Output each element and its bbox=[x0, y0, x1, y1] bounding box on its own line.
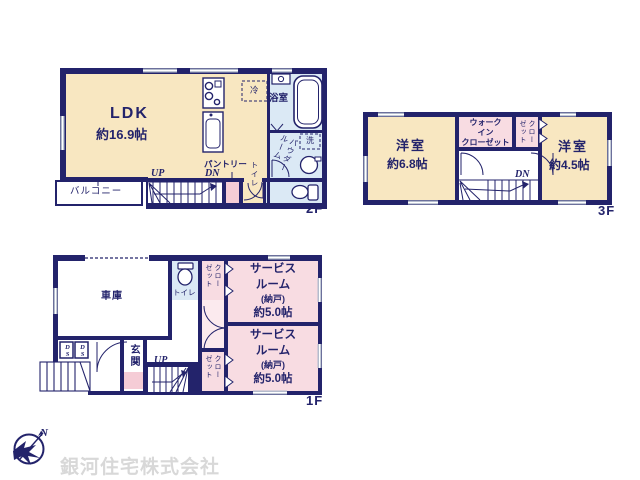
2f-toilet-label: トイレ bbox=[250, 161, 259, 191]
3f-room-right-name: 洋室 bbox=[558, 140, 588, 153]
1f-closet-top-label: クローゼット bbox=[204, 264, 222, 290]
3f-floor-label: 3F bbox=[598, 204, 615, 217]
1f-service-room-2-label: サービス ルーム (納戸) 約5.0帖 bbox=[228, 330, 318, 386]
3f-wic-line2: イン bbox=[478, 129, 494, 137]
1f-ds-label-2: DS bbox=[78, 344, 86, 358]
1f-toilet-label: トイレ bbox=[173, 289, 196, 297]
2f-bath-label: 浴室 bbox=[269, 94, 288, 104]
sr1-line1: サービス bbox=[250, 264, 296, 276]
2f-washer-label: 洗 bbox=[306, 137, 314, 145]
compass-north-label: N bbox=[40, 428, 48, 439]
3f-wic-line3: クローゼット bbox=[462, 139, 510, 147]
sr2-line3: (納戸) bbox=[261, 361, 285, 370]
2f-floor-label: 2F bbox=[306, 202, 323, 215]
3f-wic-line1: ウォーク bbox=[470, 119, 502, 127]
3f-wic-label: ウォーク イン クローゼット bbox=[457, 119, 514, 147]
1f-entrance-label: 玄関 bbox=[127, 344, 139, 370]
1f-up-label: UP bbox=[154, 356, 167, 366]
stove-icon bbox=[203, 78, 224, 108]
sr1-line4: 約5.0帖 bbox=[254, 308, 293, 320]
2f-ldk-name: LDK bbox=[110, 106, 149, 122]
kitchen-sink-icon bbox=[203, 112, 223, 152]
sr2-line2: ルーム bbox=[256, 346, 290, 358]
1f-service-room-1-label: サービス ルーム (納戸) 約5.0帖 bbox=[228, 264, 318, 320]
company-watermark: 銀河住宅株式会社 bbox=[60, 452, 220, 479]
3f-room-left-name: 洋室 bbox=[396, 139, 426, 152]
1f-hall-pink bbox=[202, 300, 224, 352]
sr2-line1: サービス bbox=[250, 330, 296, 342]
bath-vanity-icon bbox=[272, 74, 290, 84]
1f-floor-label: 1F bbox=[306, 394, 323, 407]
2f-up-label: UP bbox=[151, 169, 164, 179]
sr1-line3: (納戸) bbox=[261, 295, 285, 304]
1f-ds-label-1: DS bbox=[63, 344, 71, 358]
3f-room-right-size: 約4.5帖 bbox=[549, 159, 590, 171]
floorplan-graphics bbox=[0, 0, 640, 480]
2f-toilet-icon bbox=[292, 185, 318, 200]
bathtub-icon bbox=[294, 76, 322, 128]
1f-garage-label: 車庫 bbox=[101, 292, 123, 302]
1f-toilet-icon bbox=[178, 263, 193, 285]
2f-ldk-size: 約16.9帖 bbox=[96, 128, 147, 141]
sr2-line4: 約5.0帖 bbox=[254, 374, 293, 386]
3f-dn-label: DN bbox=[515, 170, 529, 180]
2f-balcony-label: バルコニー bbox=[70, 187, 122, 197]
sr1-line2: ルーム bbox=[256, 280, 290, 292]
3f-closet-label: クローゼット bbox=[518, 120, 536, 146]
compass-icon bbox=[13, 431, 44, 465]
1f-closet-bottom-label: クローゼット bbox=[204, 355, 222, 381]
exterior-steps bbox=[40, 362, 90, 391]
2f-fridge-label: 冷 bbox=[250, 86, 259, 95]
floorplan-canvas: LDK 約16.9帖 バルコニー 浴室 パウダールーム 洗 冷 パントリー トイ… bbox=[0, 0, 640, 480]
2f-dn-label: DN bbox=[205, 169, 219, 179]
1f-entrance-tataki bbox=[124, 372, 144, 389]
3f-room-left-size: 約6.8帖 bbox=[387, 158, 428, 170]
2f-pantry-room bbox=[226, 182, 239, 203]
